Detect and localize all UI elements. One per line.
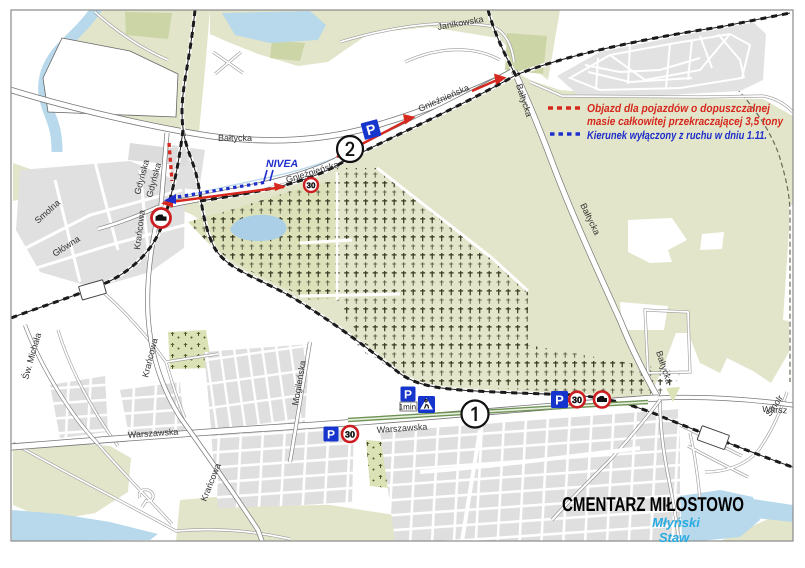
- svg-text:Kierunek wyłączony z ruchu w d: Kierunek wyłączony z ruchu w dniu 1.11.: [587, 130, 767, 142]
- svg-text:P: P: [404, 388, 412, 402]
- svg-text:1min.: 1min.: [399, 403, 419, 412]
- svg-text:Staw: Staw: [659, 530, 690, 545]
- svg-text:Młyński: Młyński: [652, 515, 700, 530]
- svg-text:P: P: [555, 393, 564, 408]
- svg-text:P: P: [327, 428, 335, 442]
- svg-text:30: 30: [307, 181, 316, 190]
- svg-text:30: 30: [345, 430, 355, 440]
- svg-text:CMENTARZ MIŁOSTOWO: CMENTARZ MIŁOSTOWO: [562, 494, 744, 516]
- svg-text:30: 30: [572, 395, 582, 405]
- svg-text:masie całkowitej przekraczając: masie całkowitej przekraczającej 3,5 ton…: [587, 116, 784, 128]
- svg-text:Objazd dla pojazdów o dopuszcz: Objazd dla pojazdów o dopuszczalnej: [587, 103, 771, 115]
- svg-text:Bałtycka: Bałtycka: [218, 133, 252, 143]
- svg-text:NIVEA: NIVEA: [266, 158, 298, 170]
